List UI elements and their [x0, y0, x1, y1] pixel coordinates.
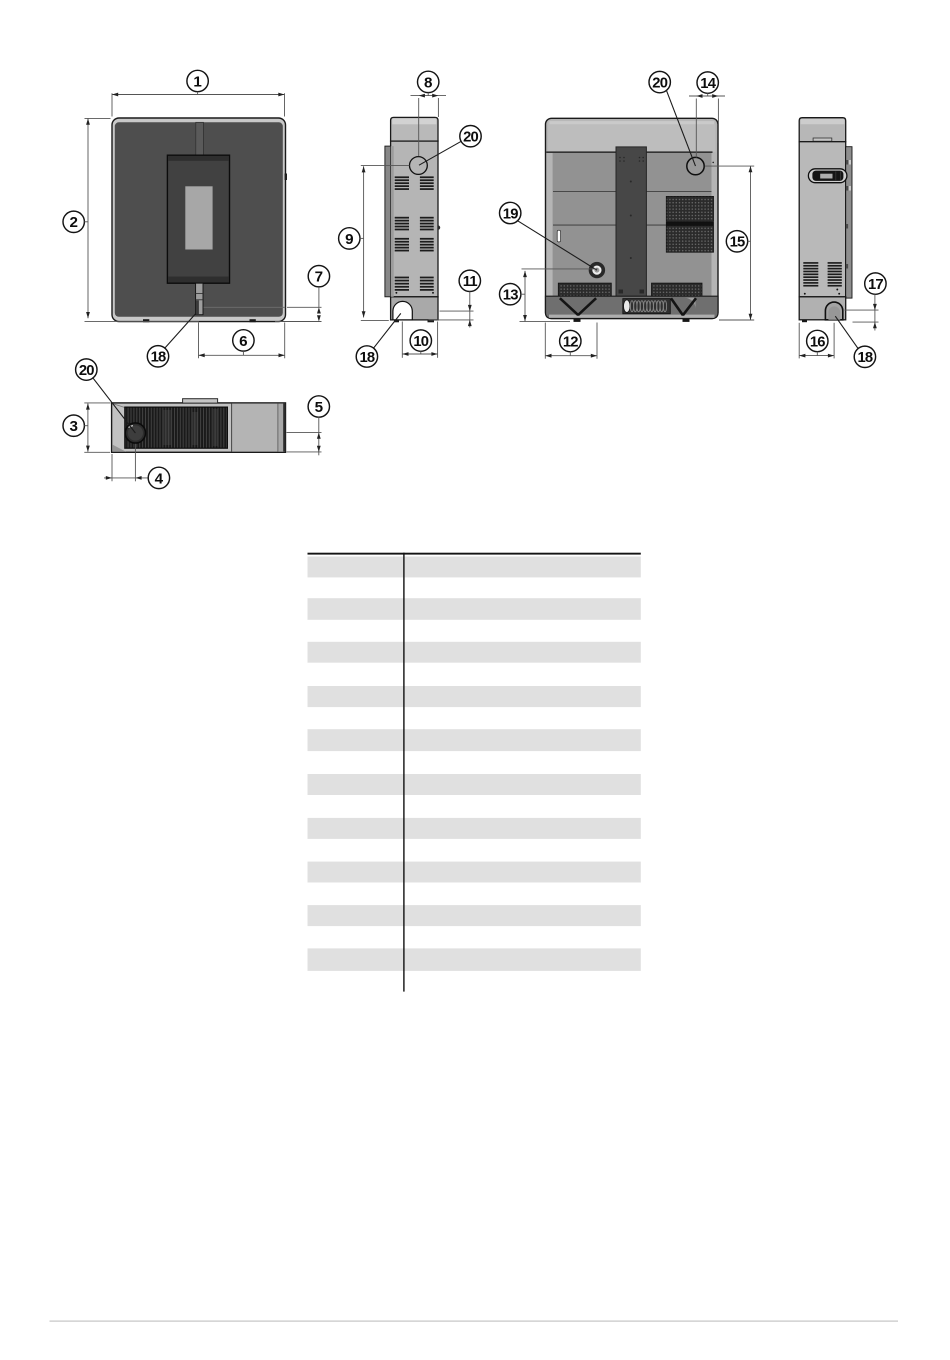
svg-text:18: 18 — [151, 350, 166, 366]
svg-text:20: 20 — [652, 76, 667, 92]
svg-text:20: 20 — [79, 363, 94, 379]
svg-text:19: 19 — [503, 206, 518, 222]
svg-text:7: 7 — [315, 269, 323, 286]
svg-text:2: 2 — [69, 214, 77, 231]
svg-text:9: 9 — [345, 231, 353, 248]
svg-text:10: 10 — [413, 334, 428, 350]
svg-text:11: 11 — [463, 274, 478, 290]
svg-text:18: 18 — [857, 350, 872, 366]
svg-text:15: 15 — [730, 235, 745, 251]
svg-text:20: 20 — [463, 130, 478, 146]
svg-text:8: 8 — [424, 74, 432, 91]
svg-text:13: 13 — [503, 288, 518, 304]
svg-text:4: 4 — [155, 470, 164, 487]
svg-text:14: 14 — [700, 76, 716, 92]
svg-text:18: 18 — [359, 350, 374, 366]
svg-text:5: 5 — [315, 399, 324, 416]
svg-text:1: 1 — [193, 73, 202, 90]
svg-text:6: 6 — [239, 333, 247, 350]
svg-text:12: 12 — [563, 335, 578, 351]
svg-text:16: 16 — [810, 334, 825, 350]
svg-text:17: 17 — [868, 277, 883, 293]
svg-text:3: 3 — [69, 418, 77, 435]
